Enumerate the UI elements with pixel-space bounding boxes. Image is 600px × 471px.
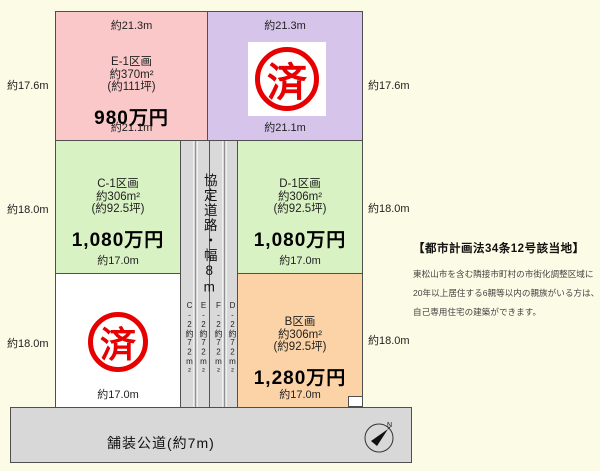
dim-label-left-row2: 約18.0m (7, 201, 49, 217)
plot-e1-name: E-1区画 (56, 56, 207, 69)
lane-label-f2: F-2約72m² (214, 301, 222, 376)
plot-e1-dim-bottom: 約21.1m (56, 119, 207, 135)
plot-b-name: B区画 (238, 316, 362, 329)
sold-stamp-icon: 済 (88, 312, 148, 372)
agreement-road-label: 協定道路・幅8m (202, 173, 216, 296)
plot-d1-area: 約306m² (238, 191, 362, 204)
plot-d1-name: D-1区画 (238, 178, 362, 191)
plot-e1-tsubo: (約111坪) (56, 81, 207, 94)
dim-label-right-row2: 約18.0m (368, 200, 410, 216)
plot-b-dim-bottom: 約17.0m (238, 386, 362, 402)
plot-b-tsubo: (約92.5坪) (238, 341, 362, 354)
agreement-road: 協定道路・幅8m C-2約72m² E-2約72m² F-2約72m² D-2約… (180, 140, 238, 408)
dim-label-right-row3: 約18.0m (368, 332, 410, 348)
plot-a-dim-top: 約21.3m (208, 17, 362, 33)
plot-sold-lower: 済 約17.0m (55, 273, 181, 408)
zoning-notice-line: 20年以上居住する6親等以内の親族がいる方は、 (413, 284, 599, 303)
sold-stamp-label: 済 (100, 316, 136, 368)
plot-b-corner-notch (348, 396, 363, 407)
plot-c1-name: C-1区画 (56, 178, 180, 191)
lane-divider (195, 141, 196, 407)
plot-d1-dim-bottom: 約17.0m (238, 252, 362, 268)
lane-label-c2: C-2約72m² (185, 301, 193, 376)
plot-e1-dim-top: 約21.3m (56, 17, 207, 33)
dim-label-left-row1: 約17.6m (7, 77, 49, 93)
compass-north-label: N (387, 422, 392, 429)
sold-stamp-card: 済 (248, 42, 326, 116)
plot-d1-tsubo: (約92.5坪) (238, 203, 362, 216)
plot-c1-price: 1,080万円 (56, 225, 180, 252)
zoning-notice-line: 自己専用住宅の建築ができます。 (413, 303, 599, 322)
lane-divider (224, 141, 225, 407)
sold-stamp-icon: 済 (255, 47, 319, 111)
plot-a-dim-bottom: 約21.1m (208, 119, 362, 135)
plot-b: B区画 約306m² (約92.5坪) 1,280万円 約17.0m (237, 273, 363, 408)
plot-c1-dim-bottom: 約17.0m (56, 252, 180, 268)
dim-label-left-row3: 約18.0m (7, 335, 49, 351)
dim-label-right-row1: 約17.6m (368, 77, 410, 93)
plot-e1: 約21.3m E-1区画 約370m² (約111坪) 980万円 約21.1m (55, 11, 208, 141)
land-plot-diagram: 約21.3m E-1区画 約370m² (約111坪) 980万円 約21.1m… (0, 0, 600, 471)
plot-c1-tsubo: (約92.5坪) (56, 203, 180, 216)
plot-c1: C-1区画 約306m² (約92.5坪) 1,080万円 約17.0m (55, 140, 181, 274)
plot-b-area: 約306m² (238, 329, 362, 342)
plot-e1-area: 約370m² (56, 69, 207, 82)
public-road-label: 舗装公道(約7m) (107, 433, 215, 453)
zoning-notice-line: 東松山市を含む隣接市町村の市街化調整区域に (413, 265, 599, 284)
plot-d1: D-1区画 約306m² (約92.5坪) 1,080万円 約17.0m (237, 140, 363, 274)
plot-d1-price: 1,080万円 (238, 225, 362, 252)
zoning-notice-heading: 【都市計画法34条12号該当地】 (413, 240, 599, 256)
sold-stamp-label: 済 (267, 50, 307, 108)
plot-sold-lower-dim-bottom: 約17.0m (56, 386, 180, 402)
lane-label-d2: D-2約72m² (228, 301, 236, 376)
public-road: 舗装公道(約7m) N (10, 407, 412, 463)
plot-c1-area: 約306m² (56, 191, 180, 204)
compass-icon: N (362, 419, 398, 455)
zoning-notice: 【都市計画法34条12号該当地】 東松山市を含む隣接市町村の市街化調整区域に 2… (413, 240, 599, 322)
lane-label-e2: E-2約72m² (199, 301, 207, 376)
plot-a-sold: 約21.3m 済 約21.1m (207, 11, 363, 141)
